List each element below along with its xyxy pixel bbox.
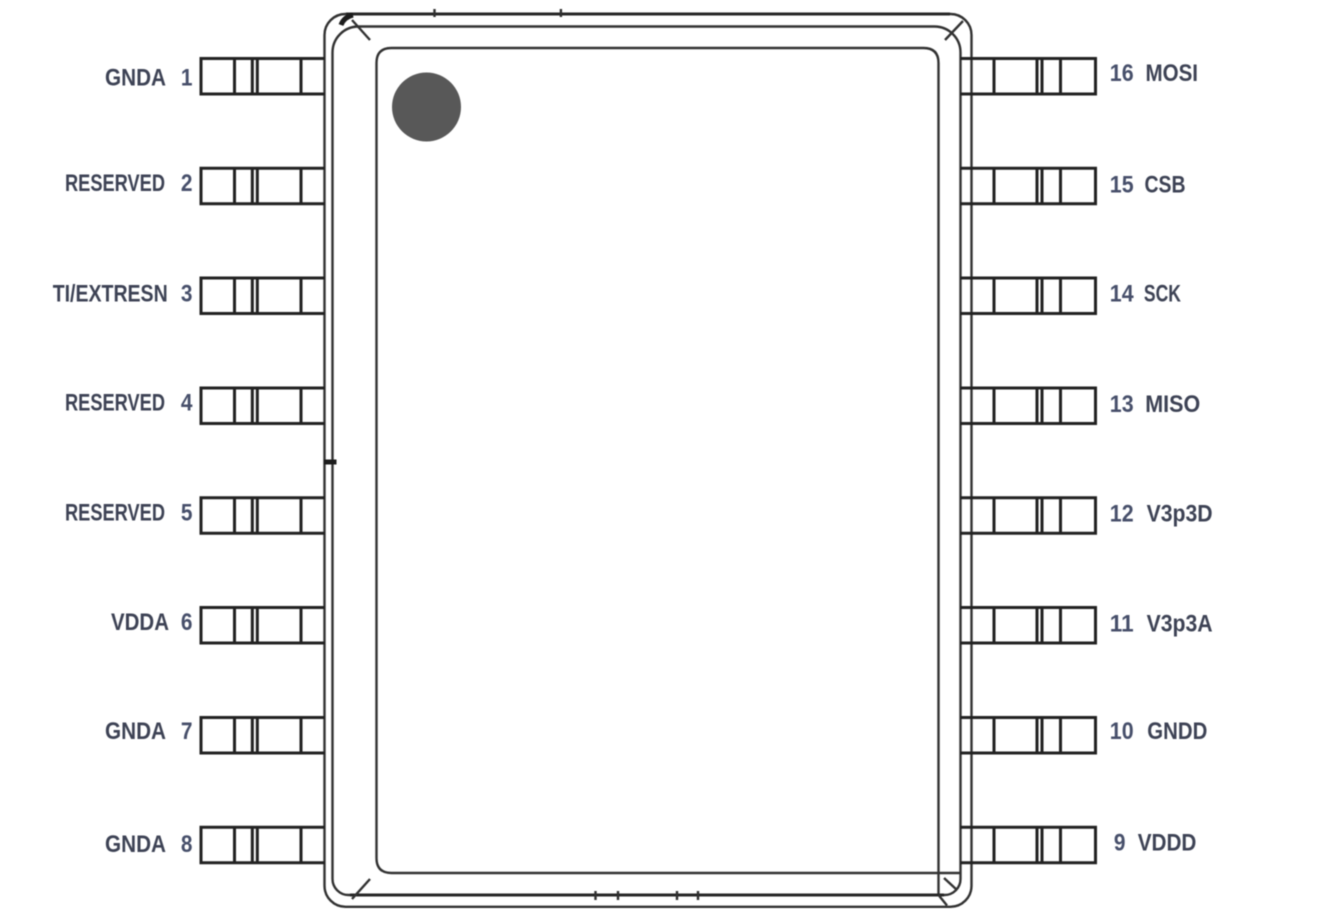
svg-text:RESERVED: RESERVED [65,500,165,527]
svg-text:13: 13 [1110,391,1134,418]
svg-text:VDDD: VDDD [1138,829,1197,856]
svg-text:14: 14 [1110,280,1134,307]
svg-text:GNDA: GNDA [105,65,166,92]
svg-text:MOSI: MOSI [1146,60,1199,87]
svg-text:1: 1 [181,65,193,92]
svg-text:CSB: CSB [1145,172,1186,199]
svg-text:SCK: SCK [1144,280,1181,307]
svg-text:7: 7 [181,718,193,745]
svg-text:8: 8 [181,831,193,858]
svg-text:16: 16 [1110,60,1134,87]
svg-text:GNDD: GNDD [1147,718,1207,745]
svg-text:9: 9 [1114,829,1126,856]
svg-text:4: 4 [181,390,193,417]
svg-text:5: 5 [181,500,193,527]
svg-text:15: 15 [1110,172,1134,199]
svg-text:V3p3D: V3p3D [1147,500,1213,527]
svg-text:11: 11 [1110,611,1134,638]
svg-text:TI/EXTRESN: TI/EXTRESN [53,280,168,307]
svg-text:2: 2 [181,170,193,197]
svg-text:GNDA: GNDA [105,718,166,745]
svg-text:GNDA: GNDA [105,831,166,858]
svg-text:12: 12 [1110,500,1134,527]
svg-text:VDDA: VDDA [111,609,169,636]
svg-text:V3p3A: V3p3A [1147,611,1213,638]
svg-text:3: 3 [181,280,193,307]
svg-text:MISO: MISO [1145,391,1200,418]
svg-text:6: 6 [181,609,193,636]
svg-text:RESERVED: RESERVED [65,390,165,417]
svg-text:RESERVED: RESERVED [65,170,165,197]
svg-text:10: 10 [1110,718,1134,745]
